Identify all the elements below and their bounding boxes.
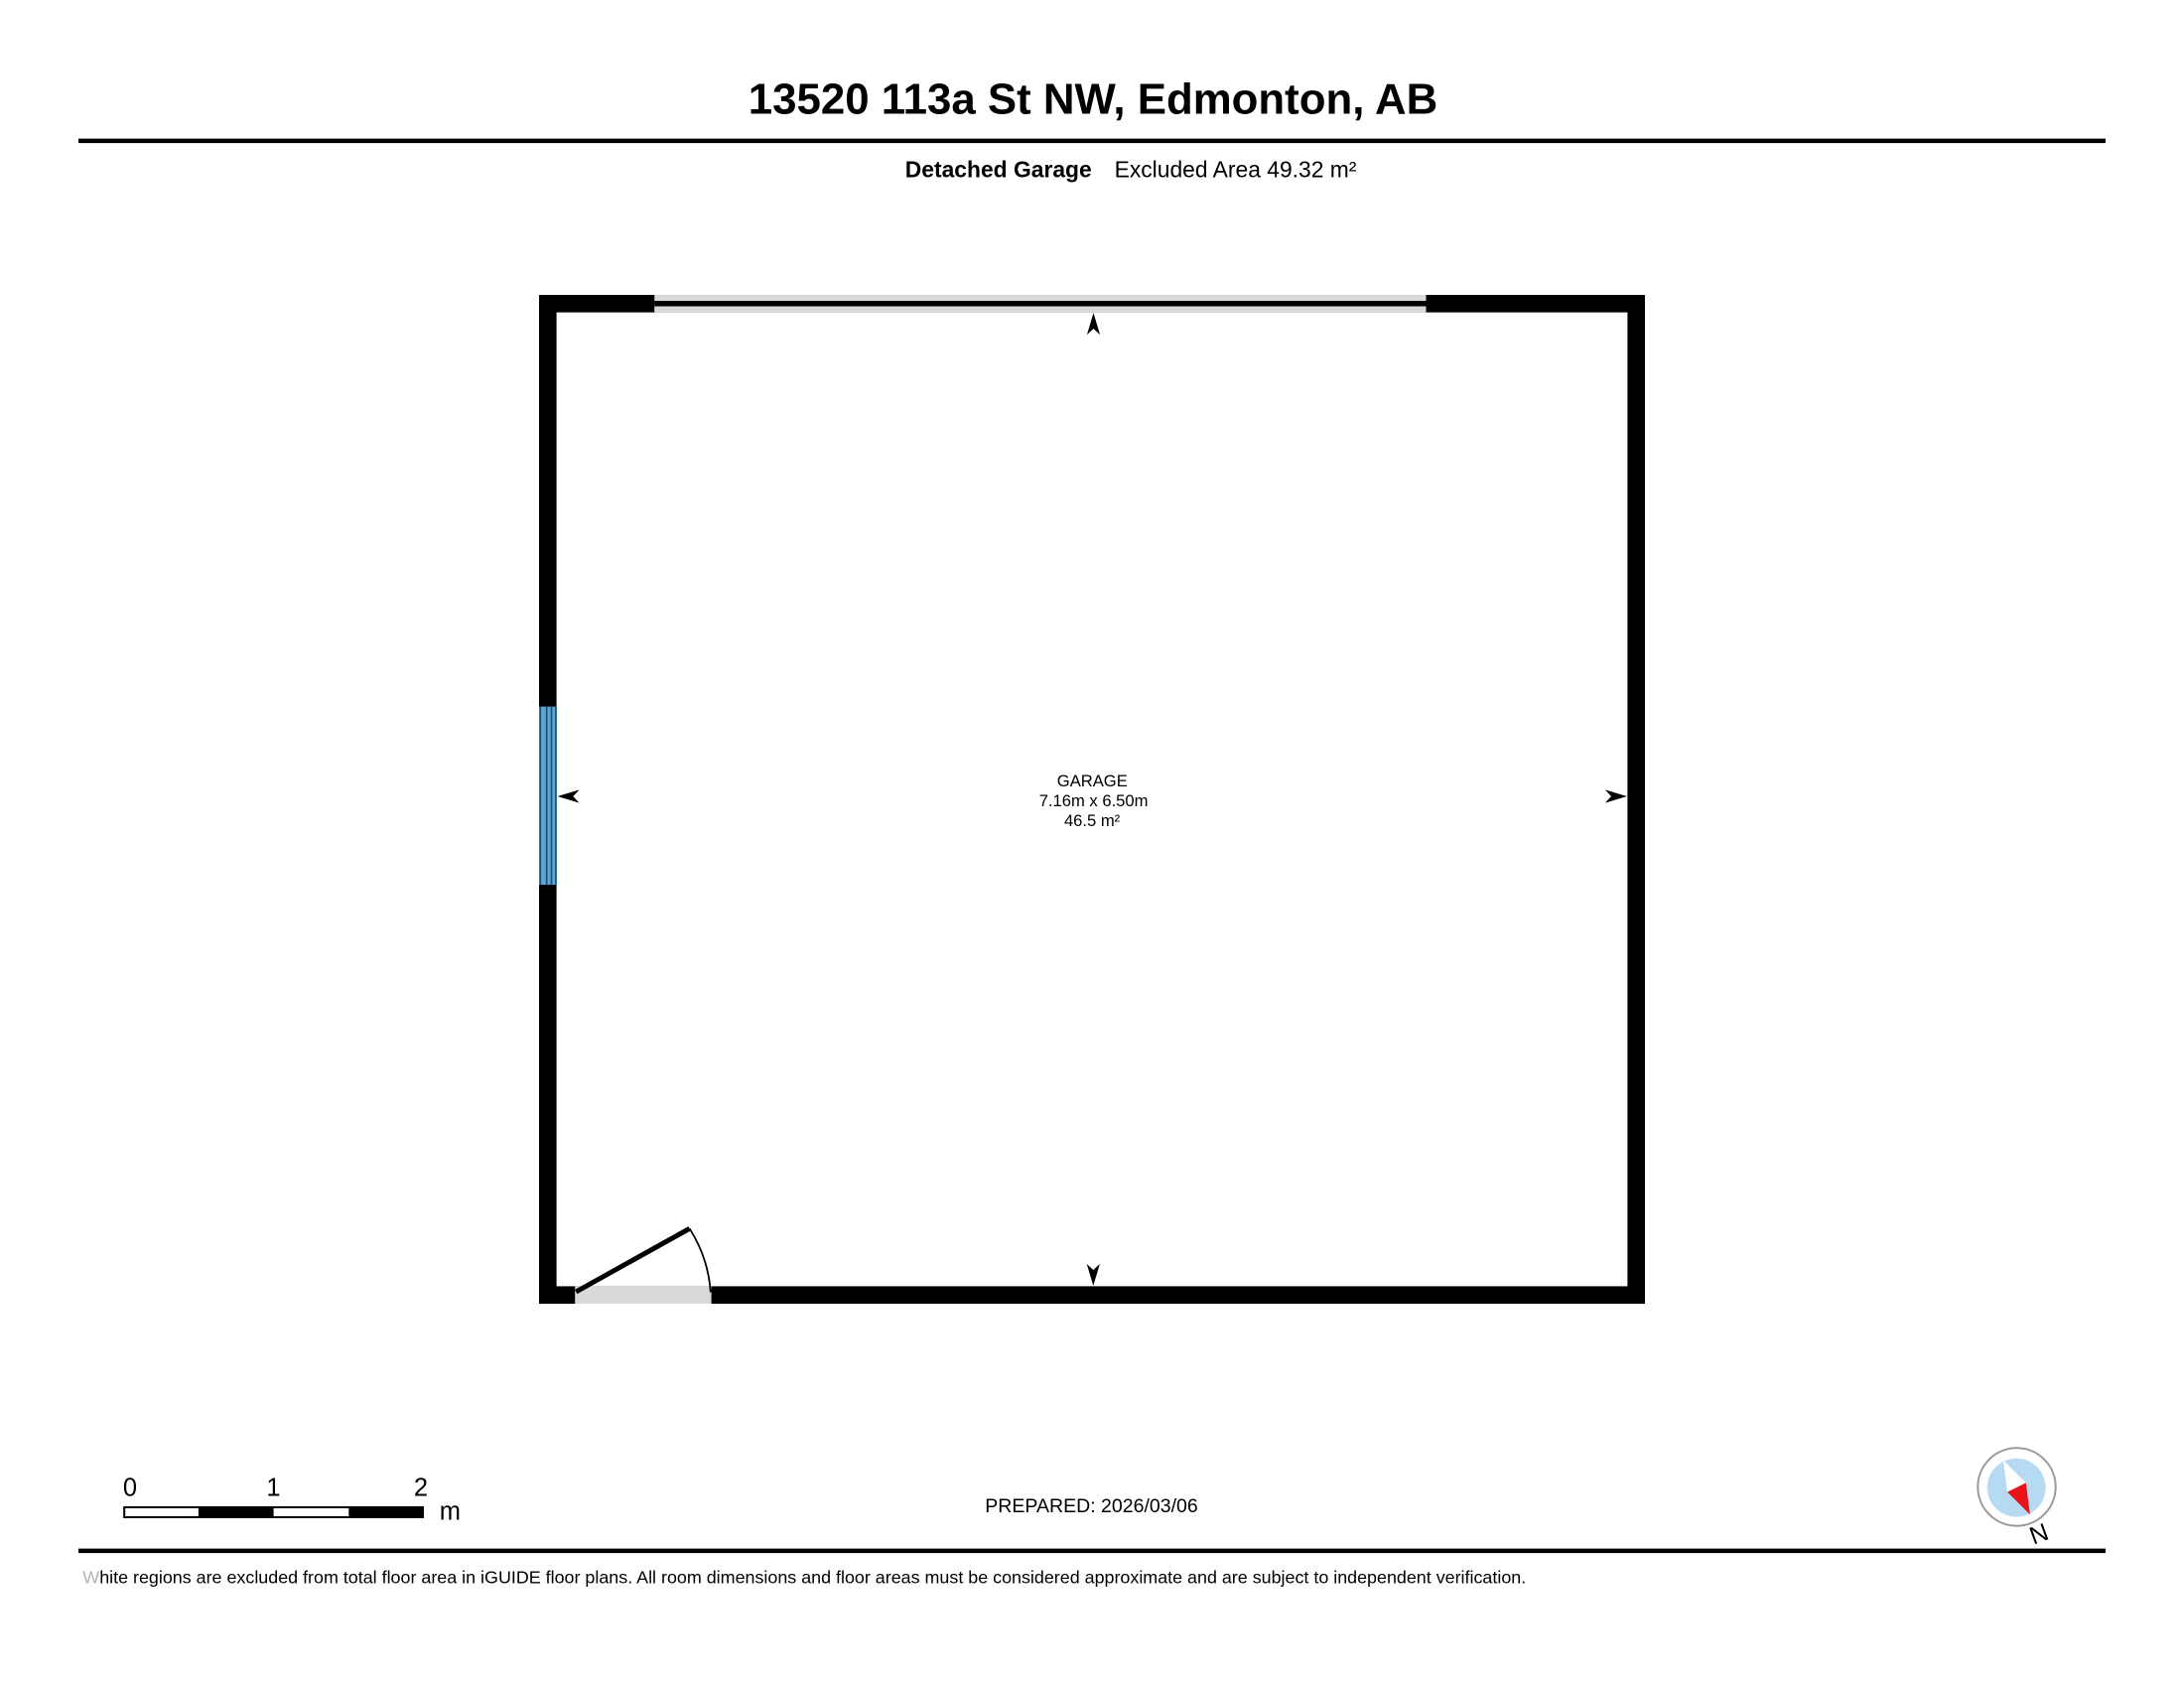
svg-text:7.16m x 6.50m: 7.16m x 6.50m bbox=[1039, 791, 1149, 810]
svg-text:0: 0 bbox=[123, 1474, 137, 1501]
svg-text:White regions are excluded fro: White regions are excluded from total fl… bbox=[82, 1568, 1526, 1588]
svg-text:46.5 m²: 46.5 m² bbox=[1064, 811, 1121, 830]
svg-text:GARAGE: GARAGE bbox=[1057, 772, 1128, 790]
svg-text:2: 2 bbox=[414, 1474, 428, 1501]
svg-text:13520 113a St NW, Edmonton, AB: 13520 113a St NW, Edmonton, AB bbox=[749, 75, 1437, 124]
svg-text:Detached Garage: Detached Garage bbox=[905, 156, 1092, 182]
svg-text:1: 1 bbox=[266, 1474, 280, 1501]
svg-text:m: m bbox=[440, 1498, 461, 1526]
svg-text:Excluded Area 49.32 m²: Excluded Area 49.32 m² bbox=[1115, 156, 1357, 182]
svg-text:PREPARED: 2026/03/06: PREPARED: 2026/03/06 bbox=[985, 1495, 1197, 1517]
